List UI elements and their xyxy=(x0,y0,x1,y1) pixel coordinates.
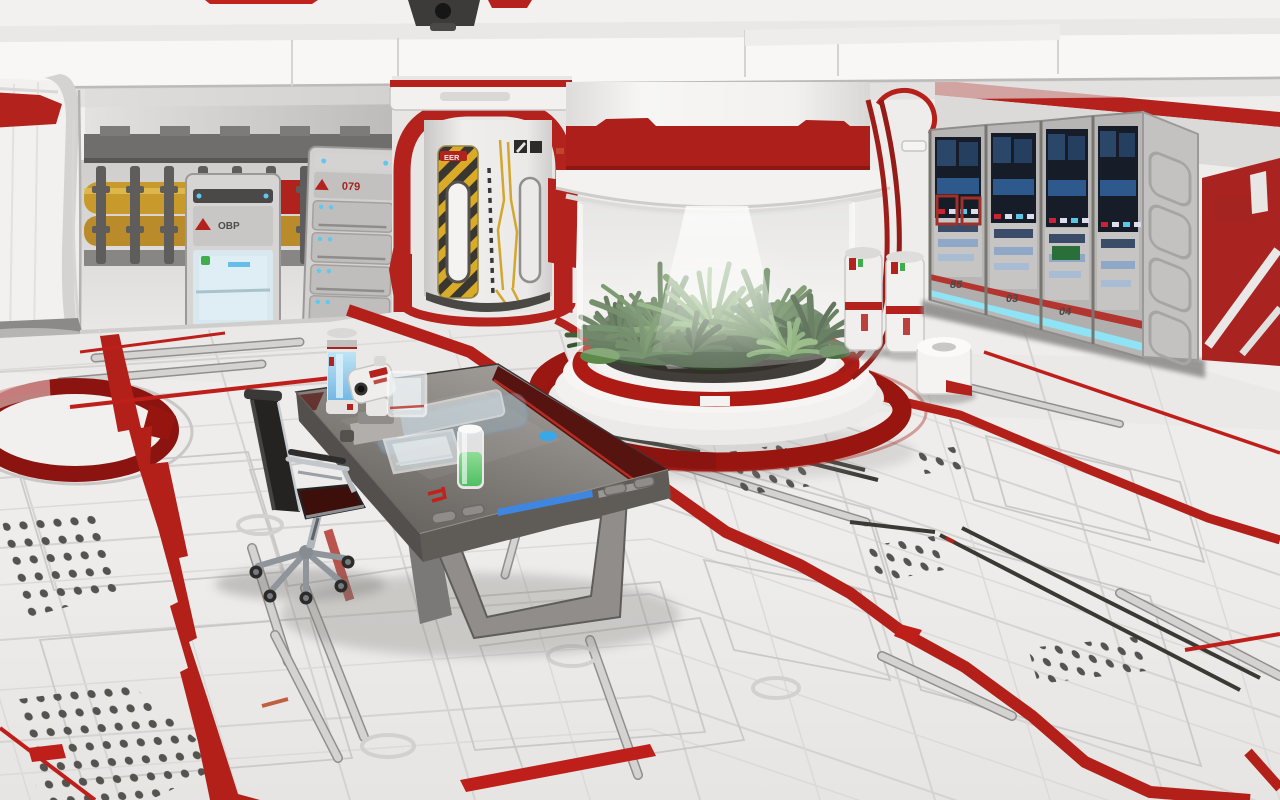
svg-text:OBP: OBP xyxy=(218,221,240,232)
svg-text:079: 079 xyxy=(342,181,361,194)
svg-text:EER: EER xyxy=(444,153,460,162)
svg-text:03: 03 xyxy=(1006,293,1018,305)
svg-text:85: 85 xyxy=(950,279,963,291)
svg-text:04: 04 xyxy=(1059,306,1071,318)
